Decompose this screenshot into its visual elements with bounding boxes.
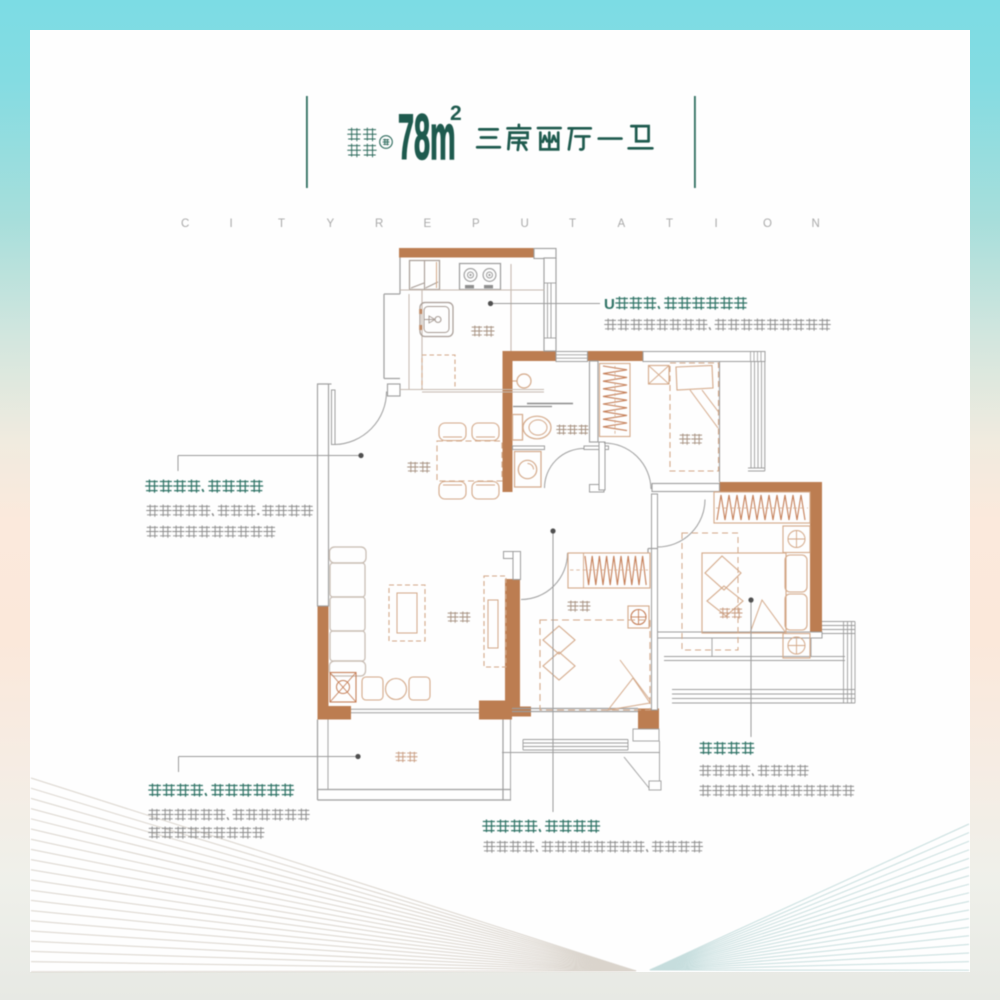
svg-text:Y: Y	[327, 218, 335, 230]
svg-text:N: N	[812, 218, 820, 230]
svg-text:U: U	[604, 296, 615, 313]
svg-text:U: U	[521, 218, 529, 230]
svg-text:2: 2	[450, 102, 462, 125]
svg-text:O: O	[763, 218, 772, 230]
svg-text:A: A	[618, 218, 626, 230]
svg-text:R: R	[375, 218, 383, 230]
svg-text:C: C	[181, 218, 189, 230]
svg-text:T: T	[278, 218, 285, 230]
svg-text:I: I	[715, 218, 718, 230]
svg-text:T: T	[666, 218, 673, 230]
svg-text:78m: 78m	[398, 101, 456, 173]
svg-text:P: P	[472, 218, 480, 230]
svg-text:I: I	[230, 218, 233, 230]
svg-text:T: T	[569, 218, 576, 230]
svg-text:E: E	[424, 218, 432, 230]
